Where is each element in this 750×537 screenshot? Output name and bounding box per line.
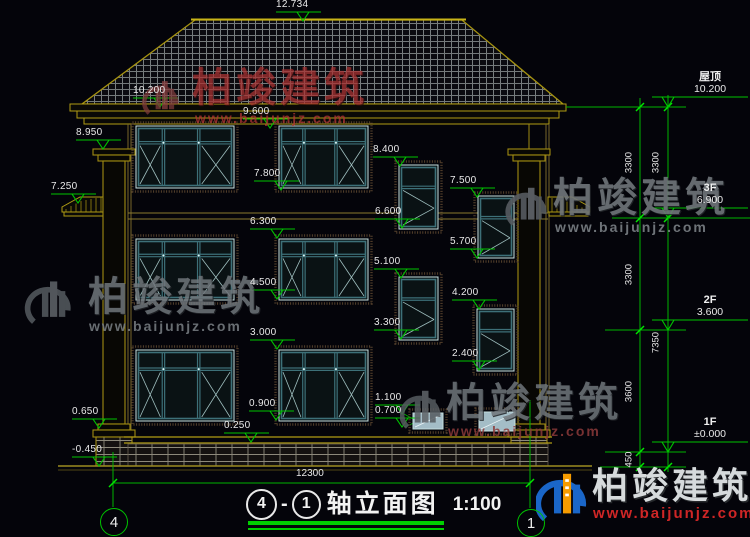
elevation-label: 0.650 [72,407,99,418]
elevation-label: 7.250 [51,182,78,193]
title-axis-start: 4 [246,489,277,520]
elevation-label: 8.950 [76,128,103,139]
drawing-title: 4 - 1 轴立面图 1:100 [246,486,501,522]
elevation-label: 3.000 [250,328,277,339]
dim-label-inner: 7350 [652,321,663,365]
left-ledge [62,197,104,216]
floor-label: 3F [674,182,746,195]
floor-level-value: ±0.000 [674,429,746,441]
window-large [276,347,372,425]
window-large [133,347,238,425]
window-large [133,123,238,192]
dim-label-outer: 3300 [625,141,636,185]
window-large [276,236,372,304]
elevation-label: 7.800 [254,169,281,180]
window-small [474,306,518,375]
elevation-label: 2.400 [452,349,479,360]
floor-level-value: 6.900 [674,195,746,207]
floor-label: 屋顶 [674,71,746,84]
floor-marker-symbol [652,97,748,107]
elevation-label: 0.900 [249,399,276,410]
elevation-label: 4.200 [452,288,479,299]
elevation-label: 6.600 [375,207,402,218]
elevation-label: 6.300 [250,217,277,228]
right-ledge [548,197,590,216]
elevation-label: 5.700 [450,237,477,248]
elevation-label: -0.450 [72,445,102,456]
dim-label-inner: 3300 [652,141,663,185]
elevation-label: 0.700 [375,406,402,417]
elevation-label: 4.500 [250,278,277,289]
elevation-marker-symbol [250,340,295,349]
elevation-label: 3.300 [374,318,401,329]
elevation-marker-symbol [250,229,295,238]
floor-marker-symbol [652,320,748,330]
elevation-label: 7.500 [450,176,477,187]
cad-elevation-drawing: 柏竣建筑 www.baijunjz.com 柏竣建筑 www.baijunjz.… [0,0,750,537]
elevation-label: 8.400 [373,145,400,156]
elevation-label: 1.100 [375,393,402,404]
eave-fascia [70,104,566,124]
dim-label-bottom: 12300 [296,469,324,479]
floor-level-value: 10.200 [674,84,746,96]
dim-label-outer: 3300 [625,253,636,297]
elevation-marker-symbol [76,140,121,149]
title-underline-thin [248,528,444,530]
floor-marker-symbol [652,208,748,218]
drawing-lines [0,0,750,537]
dim-label-outer: 3600 [625,370,636,414]
dim-label-outer: 450 [625,438,636,482]
title-scale: 1:100 [453,495,502,514]
title-text: 轴立面图 [327,492,439,517]
floor-label: 2F [674,294,746,307]
floor-marker-symbol [652,442,748,452]
floor-label: 1F [674,416,746,429]
elevation-label: 10.200 [133,86,165,97]
window-tiny [410,410,447,433]
elevation-label: 5.100 [374,257,401,268]
elevation-label: 0.250 [224,421,251,432]
window-large [133,236,238,304]
axis-bubble-4: 4 [100,508,128,536]
window-small [396,162,442,233]
elevation-label: 9.600 [243,107,270,118]
floor-level-value: 3.600 [674,307,746,319]
title-dash: - [281,493,288,516]
window-tiny [476,409,519,435]
axis-bubble-1: 1 [517,509,545,537]
title-underline-thick [248,521,444,525]
window-small [396,274,442,344]
title-axis-end: 1 [292,490,321,519]
elevation-label: 12.734 [276,0,308,11]
